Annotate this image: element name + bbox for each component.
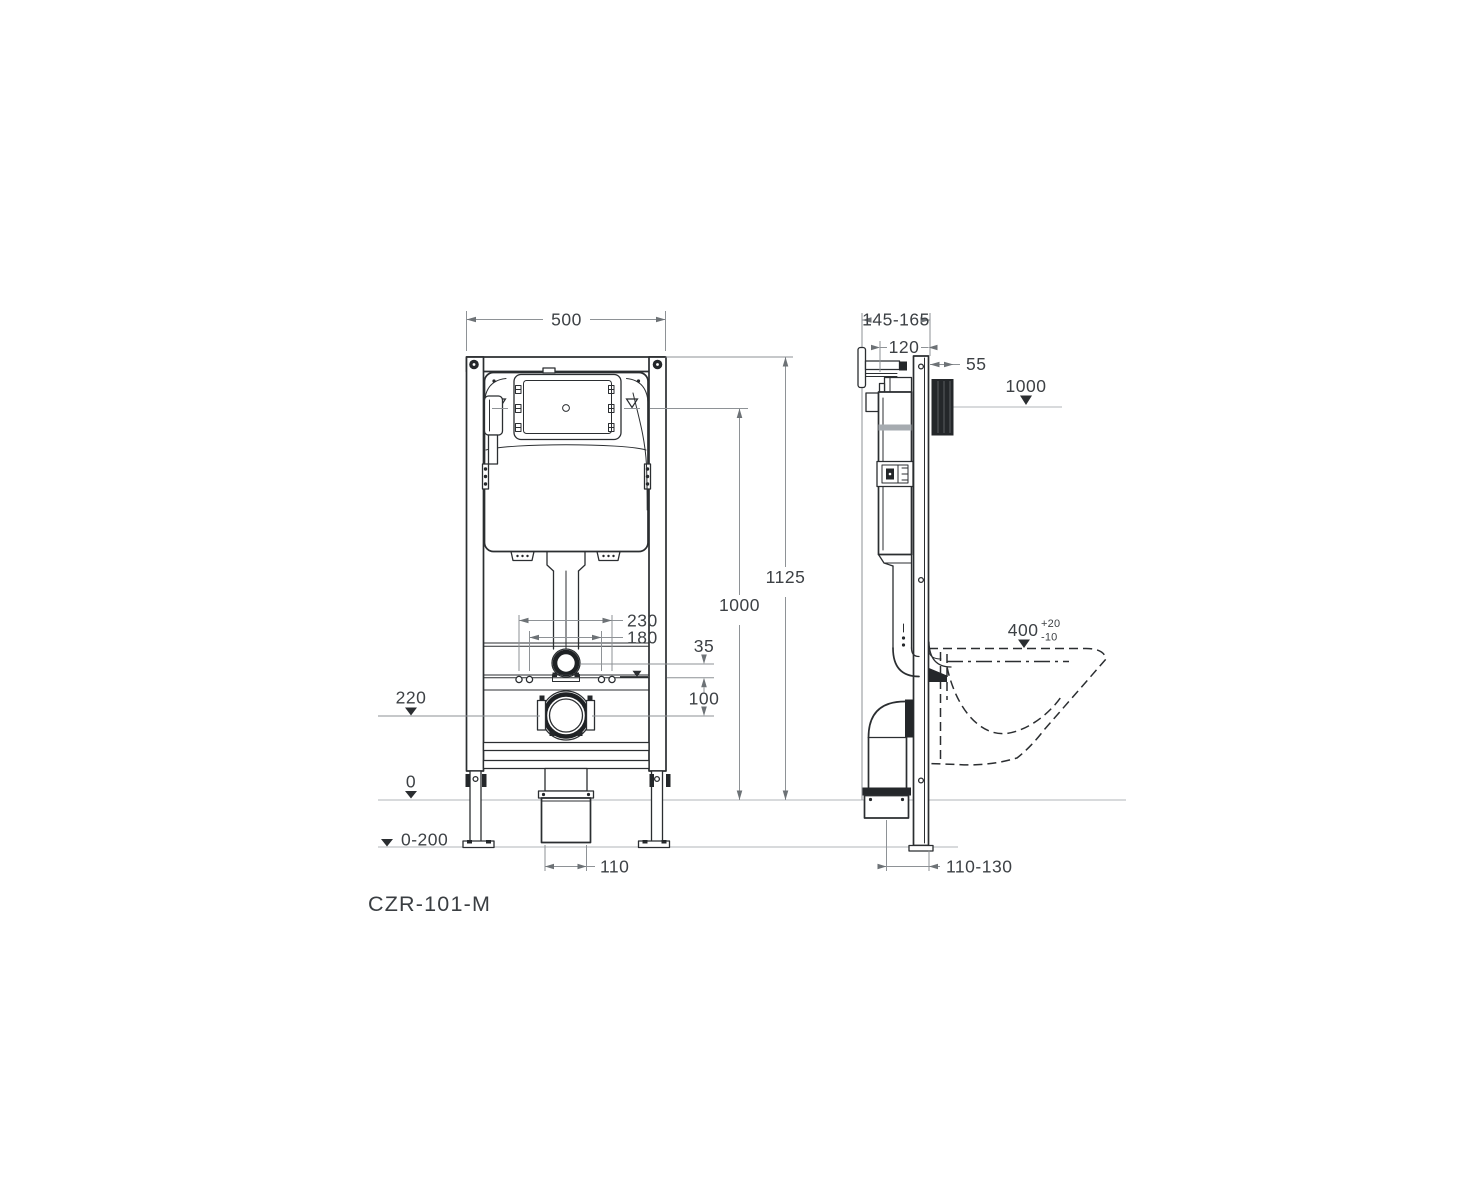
dim-leg-range: 0-200 [401,830,448,850]
dim-drain-height: 220 [396,688,427,708]
dim-offset-35: 35 [694,636,714,656]
level-triangle-0 [405,791,417,799]
fixing-hole [609,676,615,682]
cistern-top-tab [543,368,555,373]
level-triangle-220 [405,708,417,716]
dim-flush-height: 1000 [719,595,760,615]
fixing-hole [526,676,532,682]
dim-offset-100: 100 [689,689,720,709]
fill-valve [485,396,503,435]
dim-frame-depth: 145-165 [862,310,930,330]
front-view: 500 1125 1000 [378,310,805,877]
model-label: CZR-101-M [368,892,491,916]
inlet-connection [866,393,879,412]
dim-bowl-tol-minus: -10 [1041,632,1058,644]
lower-crossbar-1 [484,743,650,751]
outlet-flange [539,791,594,798]
level-triangle-1000 [1020,396,1032,406]
reference-lines [378,800,1126,847]
level-triangle-0-200 [381,839,393,847]
cistern-neck-side [885,378,912,393]
drain-connector [538,691,595,740]
outlet-sleeve [905,700,914,738]
dim-bowl-tol-plus: +20 [1041,618,1060,630]
bowl-inner-curve [947,667,1061,734]
elbow-collar [863,788,912,796]
toilet-bowl-outline [929,649,1106,765]
dim-outlet-diameter: 110 [600,857,629,877]
dim-frame-width: 500 [551,310,582,330]
bowl-fixing-bracket [929,668,947,682]
level-triangle-400 [1018,640,1030,649]
frame-top-bar [467,357,666,372]
side-view: 145-165 120 55 1000 400 +20 -10 [858,310,1106,877]
installation-frame-drawing: 145-165 120 55 1000 400 +20 -10 [0,0,1467,1200]
cistern-seam [879,425,912,431]
dim-fixing-inner: 180 [627,628,658,648]
dim-overall-height: 1125 [766,567,806,587]
fixing-hole [598,676,604,682]
frame-rail-right [649,357,666,771]
bracket-bolt [899,362,907,371]
frame-rail-side [914,356,929,846]
dim-outlet-offset: 110-130 [946,857,1012,877]
frame-rail-left [467,357,484,771]
dim-panel-level: 1000 [1006,376,1047,396]
wall-bracket-arm [866,361,900,370]
access-window-frame [514,375,621,440]
wall-bracket-plate [858,348,866,388]
technical-drawing-page: 145-165 120 55 1000 400 +20 -10 [0,0,1467,1200]
drain-elbow [863,700,914,819]
dim-plate-depth: 55 [966,354,986,374]
fixing-hole [516,676,522,682]
dim-cistern-depth: 120 [889,337,920,357]
lower-crossbar-2 [484,761,650,769]
dim-floor-level: 0 [406,772,416,792]
water-level-symbol [633,671,642,677]
drain-outlet-front [542,798,591,843]
dim-bowl-height: 400 [1008,620,1039,640]
